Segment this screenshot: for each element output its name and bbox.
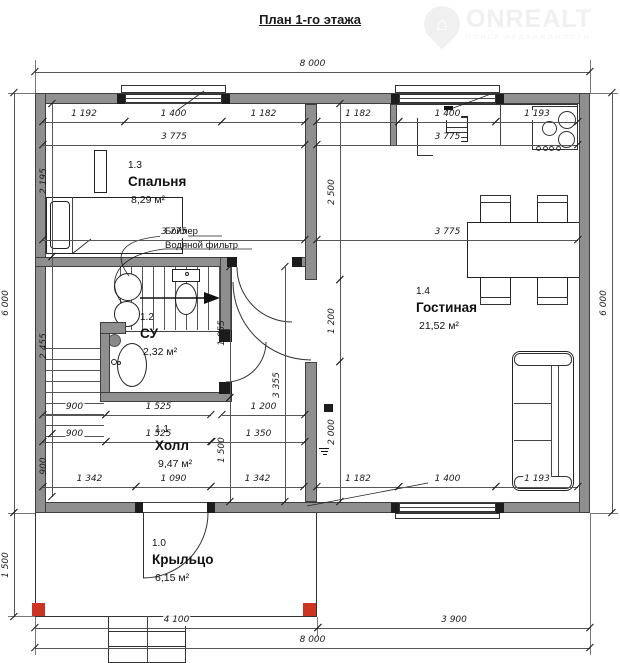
dimension-label: 3 775 — [434, 133, 462, 143]
dimension-line — [43, 145, 305, 146]
room-name: Крыльцо — [152, 552, 213, 567]
room-area: 6,15 м² — [155, 572, 189, 584]
window-jamb — [391, 94, 399, 104]
window-midline — [399, 98, 496, 99]
counter-edge-line — [417, 118, 433, 156]
cooktop-knob — [543, 146, 548, 151]
dim-tick — [48, 493, 56, 501]
dimension-line — [399, 122, 496, 123]
room-number: 1.4 — [416, 286, 430, 297]
dimension-line — [399, 487, 496, 488]
dimension-line — [35, 628, 318, 629]
dimension-label: 1 200 — [328, 307, 338, 335]
room-name: Спальня — [128, 174, 186, 189]
sofa-seat-divider — [514, 403, 552, 404]
dimension-label: 1 193 — [523, 475, 551, 485]
burner — [542, 121, 557, 136]
extension-line — [590, 93, 618, 94]
dimension-line — [496, 122, 578, 123]
dimension-label: 2 000 — [328, 418, 338, 446]
utility-ground-mark — [319, 448, 329, 449]
dimension-label: 900 — [40, 456, 50, 475]
dimension-line — [14, 93, 15, 513]
utility-ground-mark — [323, 454, 327, 455]
room-number: 1.0 — [152, 538, 166, 549]
chair-back — [480, 297, 511, 305]
wall-left — [35, 93, 46, 513]
extension-line — [590, 513, 591, 655]
sofa — [512, 351, 574, 491]
dimension-label: 8 000 — [299, 636, 327, 646]
sofa-back-line — [551, 366, 552, 476]
wall-right — [579, 93, 590, 513]
chair-back — [537, 297, 568, 305]
room-area: 8,29 м² — [131, 194, 165, 206]
wall-bath-left — [100, 322, 110, 402]
window-jamb — [496, 94, 504, 104]
extension-line — [35, 60, 36, 93]
dimension-label: 3 775 — [434, 228, 462, 238]
porch-edge-left — [35, 513, 36, 616]
bedroom-door-arc — [237, 267, 292, 322]
cabinet — [94, 150, 107, 193]
bedroom-door-jamb — [292, 257, 302, 267]
entry-door-jamb — [135, 502, 143, 513]
stair-left-flight — [46, 348, 104, 438]
wall-bath-corner — [100, 322, 126, 334]
room-name: Гостиная — [416, 300, 477, 315]
room-number: 1.3 — [128, 160, 142, 171]
cooktop-knob — [556, 146, 561, 151]
sofa-armrest — [514, 353, 572, 366]
dimension-label: 1 350 — [245, 430, 273, 440]
entry-door-leaf — [143, 513, 144, 578]
dimension-label: 8 000 — [299, 60, 327, 70]
dimension-line — [317, 122, 399, 123]
room-name: СУ — [140, 326, 158, 341]
window-midline — [125, 98, 222, 99]
dimension-line — [317, 145, 578, 146]
entry-door-opening — [143, 503, 207, 512]
dimension-line — [222, 415, 305, 416]
burner — [558, 111, 576, 129]
dimension-line — [35, 72, 590, 73]
watermark-tagline: ПОИСК НЕДВИЖИМОСТИ — [466, 34, 592, 41]
dimension-line — [317, 487, 399, 488]
dimension-line — [211, 487, 304, 488]
dimension-line — [318, 628, 590, 629]
dimension-label: 1 400 — [434, 475, 462, 485]
cooktop-knob — [536, 146, 541, 151]
plan-title: План 1-го этажа — [0, 12, 620, 27]
extension-line — [35, 617, 36, 655]
sofa-back-line — [558, 366, 559, 476]
wall-center-lower — [305, 362, 317, 502]
room-area: 2,32 м² — [143, 346, 177, 358]
porch-edge-right — [316, 513, 317, 617]
wall-center-upper — [305, 104, 317, 280]
dimension-label: 1 500 — [218, 436, 228, 464]
window-jamb — [391, 503, 399, 513]
dimension-line — [52, 104, 53, 257]
dimension-line — [230, 267, 231, 398]
dimension-label: 1 192 — [70, 110, 98, 120]
dimension-label: 1 182 — [250, 110, 278, 120]
equipment-label: Водяной фильтр — [165, 240, 238, 251]
extension-line — [590, 513, 618, 514]
dimension-line — [136, 487, 211, 488]
dining-table — [467, 222, 580, 278]
dimension-line — [52, 257, 53, 434]
room-area: 21,52 м² — [419, 320, 459, 332]
sofa-seat-divider — [514, 440, 552, 441]
dimension-label: 1 200 — [250, 403, 278, 413]
wall-bath-bottom — [100, 392, 232, 402]
dimension-line — [35, 648, 590, 649]
dimension-line — [285, 267, 286, 502]
boiler-circle — [114, 273, 142, 301]
entry-door-jamb — [207, 502, 215, 513]
dimension-label: 1 182 — [344, 475, 372, 485]
window-jamb — [222, 94, 230, 104]
porch-step-centerline — [147, 616, 148, 663]
counter-divider — [500, 104, 501, 146]
wall-bedroom — [35, 257, 237, 267]
dim-tick — [207, 411, 215, 419]
window-jamb — [117, 94, 125, 104]
dimension-label: 900 — [65, 430, 84, 440]
window-sill — [395, 513, 500, 519]
dimension-line — [52, 434, 53, 497]
utility-ground-mark — [321, 451, 328, 452]
window-jamb — [496, 503, 504, 513]
room-area: 9,47 м² — [158, 458, 192, 470]
utility-mark — [324, 404, 333, 412]
dimension-line — [340, 362, 341, 502]
dimension-line — [340, 280, 341, 362]
dimension-label: 1 342 — [244, 475, 272, 485]
dimension-label: 3 775 — [160, 133, 188, 143]
dimension-label: 1 400 — [434, 110, 462, 120]
dimension-label: 1 182 — [344, 110, 372, 120]
equipment-label: Бойлер — [165, 226, 198, 237]
dimension-line — [317, 240, 578, 241]
toilet-bowl — [175, 283, 197, 315]
dimension-label: 1 090 — [160, 475, 188, 485]
sink-faucet — [117, 361, 121, 365]
dimension-label: 1 500 — [2, 551, 12, 579]
chair-back — [480, 195, 511, 203]
room-name: Холл — [155, 438, 189, 453]
dimension-label: 1 855 — [218, 319, 228, 347]
dimension-label: 2 500 — [328, 178, 338, 206]
bed-divider — [72, 197, 73, 254]
window-sill — [121, 85, 226, 93]
dimension-line — [43, 487, 136, 488]
dimension-line — [125, 122, 222, 123]
room-number: 1.2 — [140, 312, 154, 323]
cooktop-knob — [549, 146, 554, 151]
dimension-line — [230, 398, 231, 502]
dimension-label: 3 355 — [273, 371, 283, 399]
livingroom-door-arc — [233, 282, 311, 360]
chair-back — [537, 195, 568, 203]
dimension-label: 2 195 — [40, 167, 50, 195]
dimension-label: 6 000 — [600, 289, 610, 317]
dimension-line — [43, 122, 125, 123]
bathroom-door-arc — [226, 342, 266, 382]
dimension-label: 1 342 — [76, 475, 104, 485]
floor-plan-canvas: План 1-го этажа ⌂ ONREALT ПОИСК НЕДВИЖИМ… — [0, 0, 620, 663]
stair-stringer-line — [112, 331, 232, 332]
dimension-label: 3 900 — [440, 616, 468, 626]
porch-column — [303, 603, 316, 616]
dimension-label: 4 100 — [163, 616, 191, 626]
dimension-label: 2 455 — [40, 332, 50, 360]
dimension-label: 1 193 — [523, 110, 551, 120]
window-sill — [395, 85, 500, 93]
room-number: 1.1 — [155, 424, 169, 435]
wall-bottom — [35, 502, 590, 513]
toilet-button — [185, 272, 189, 276]
dimension-line — [106, 415, 211, 416]
dimension-line — [14, 513, 15, 617]
dimension-label: 1 525 — [145, 403, 173, 413]
bed-pillow — [50, 201, 70, 249]
dimension-line — [340, 104, 341, 280]
dimension-label: 1 400 — [160, 110, 188, 120]
dimension-label: 900 — [65, 403, 84, 413]
extension-line — [590, 60, 591, 93]
dimension-line — [222, 122, 305, 123]
dimension-line — [612, 93, 613, 513]
window-midline — [399, 507, 496, 508]
porch-column — [32, 603, 45, 616]
dimension-label: 6 000 — [2, 289, 12, 317]
dimension-line — [496, 487, 578, 488]
